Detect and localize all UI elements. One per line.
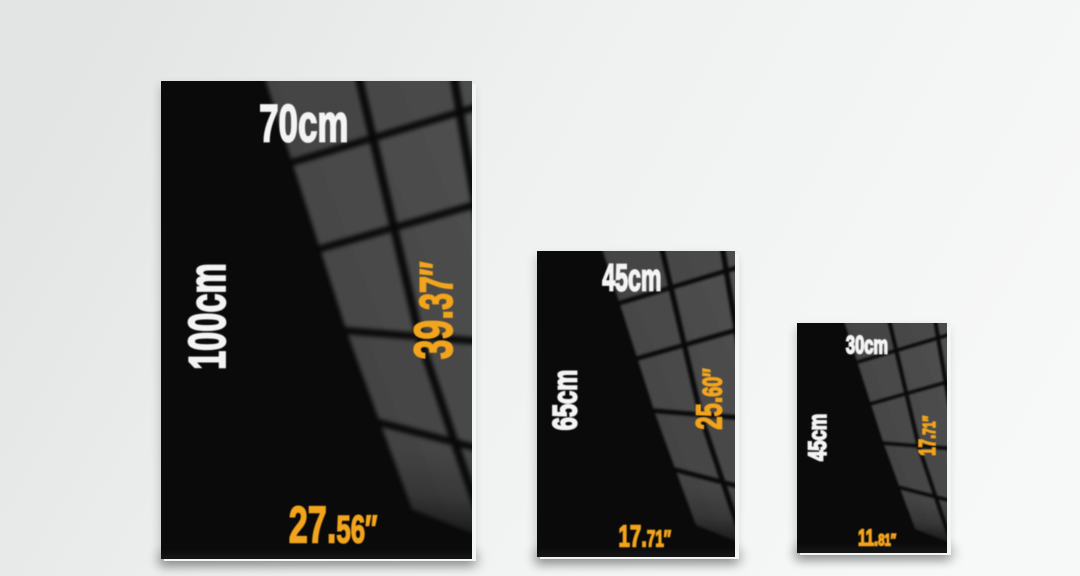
svg-text:30cm: 30cm	[846, 332, 888, 359]
svg-text:45cm: 45cm	[803, 414, 831, 461]
svg-text:100cm: 100cm	[179, 263, 237, 370]
svg-text:70cm: 70cm	[259, 93, 348, 153]
svg-text:65cm: 65cm	[547, 370, 585, 431]
svg-text:17.71″: 17.71″	[915, 415, 941, 456]
svg-text:45cm: 45cm	[602, 256, 661, 298]
svg-text:39.37″: 39.37″	[404, 262, 464, 360]
